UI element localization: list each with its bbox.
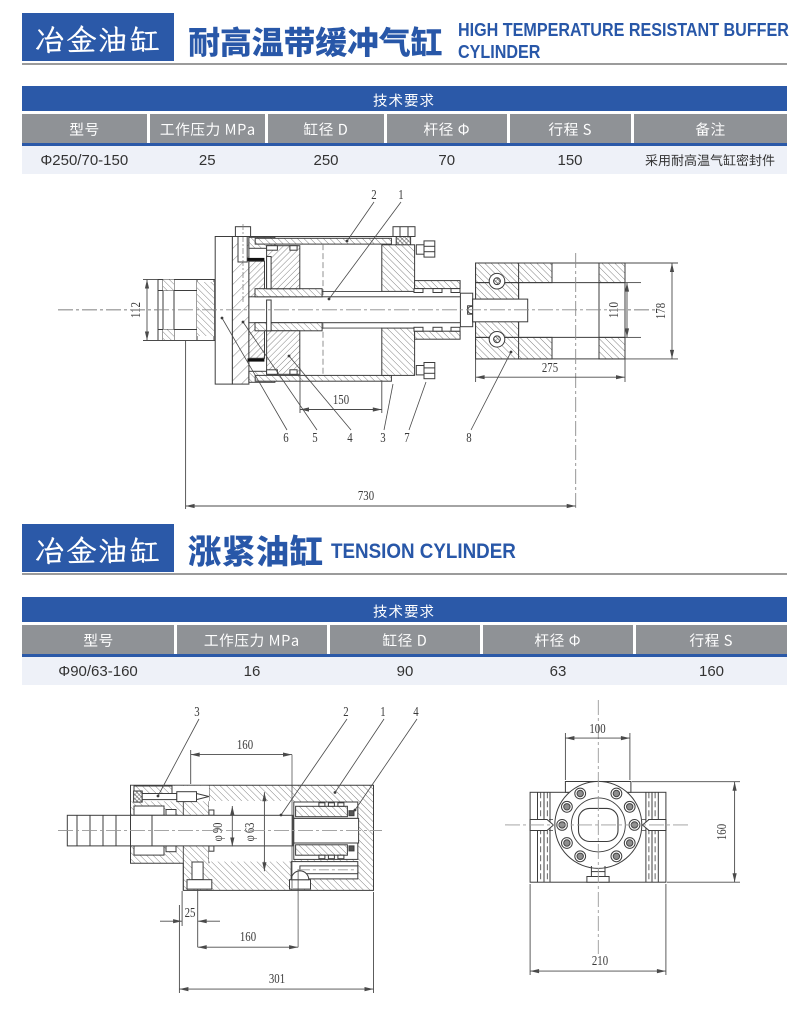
svg-text:1: 1 xyxy=(380,704,385,719)
svg-text:100: 100 xyxy=(589,721,605,736)
svg-text:160: 160 xyxy=(714,824,729,840)
svg-text:275: 275 xyxy=(542,360,558,375)
svg-text:1: 1 xyxy=(398,187,403,202)
svg-text:2: 2 xyxy=(343,704,348,719)
svg-text:301: 301 xyxy=(269,971,285,986)
svg-text:730: 730 xyxy=(358,488,374,503)
svg-text:5: 5 xyxy=(312,430,318,445)
svg-text:2: 2 xyxy=(371,187,376,202)
svg-text:210: 210 xyxy=(592,953,608,968)
svg-text:4: 4 xyxy=(413,704,419,719)
svg-text:6: 6 xyxy=(283,430,289,445)
svg-text:25: 25 xyxy=(185,905,196,920)
svg-text:150: 150 xyxy=(333,392,349,407)
svg-text:160: 160 xyxy=(240,929,256,944)
svg-text:φ 63: φ 63 xyxy=(242,822,257,841)
svg-text:4: 4 xyxy=(347,430,353,445)
svg-text:3: 3 xyxy=(380,430,386,445)
svg-text:3: 3 xyxy=(194,704,200,719)
svg-text:8: 8 xyxy=(466,430,472,445)
svg-text:φ 90: φ 90 xyxy=(210,822,225,841)
svg-text:178: 178 xyxy=(653,303,668,319)
svg-text:160: 160 xyxy=(237,737,253,752)
svg-text:7: 7 xyxy=(404,430,410,445)
